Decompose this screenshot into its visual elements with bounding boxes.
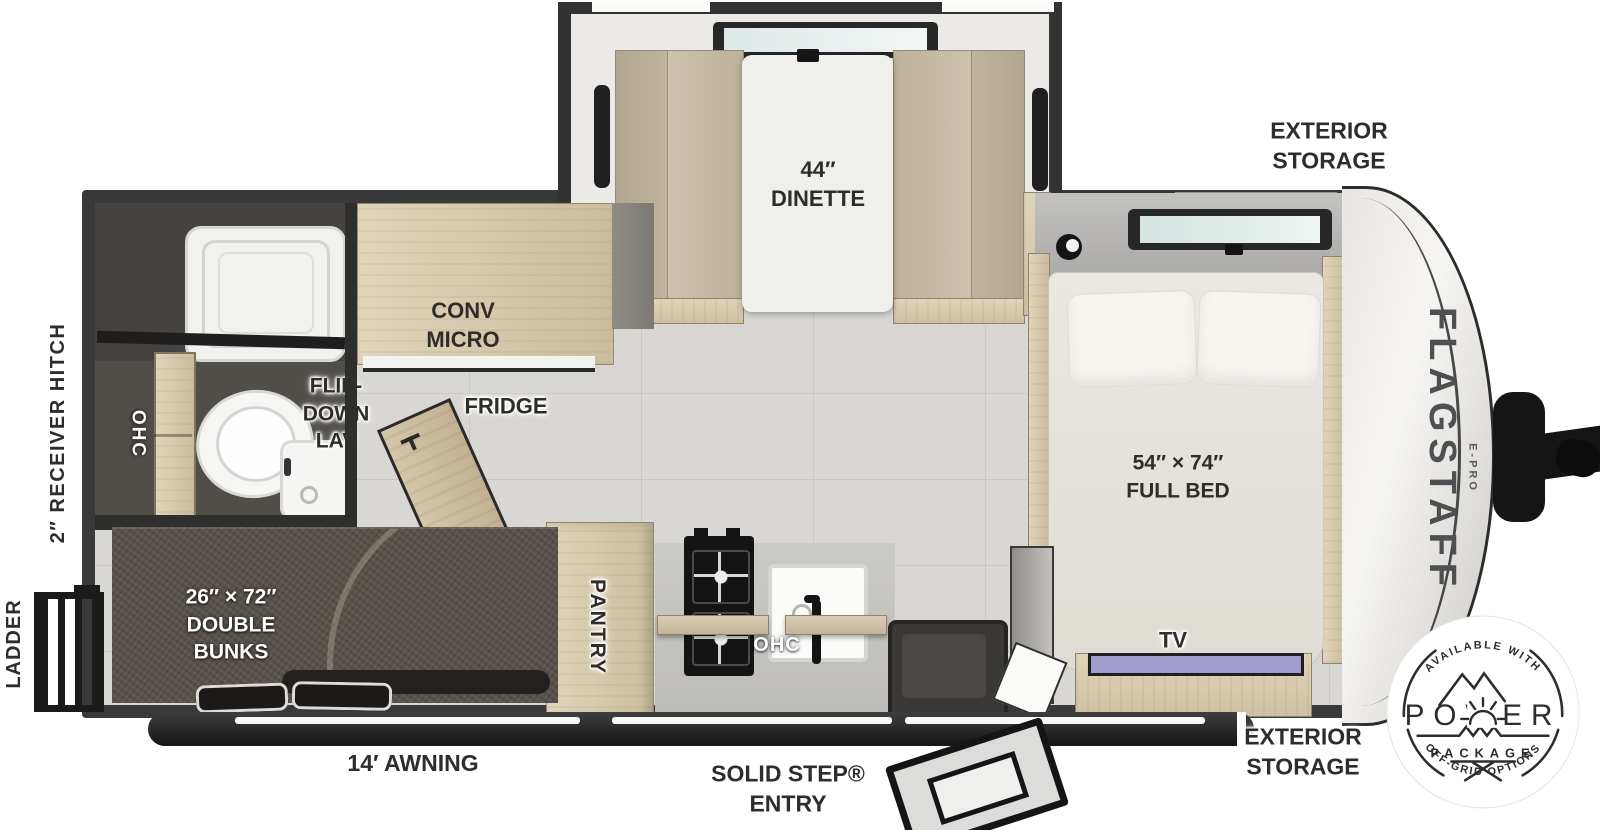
awning-highlight-1 xyxy=(235,717,580,724)
slide-wall-gap-right xyxy=(942,1,1054,12)
pantry-label: PANTRY xyxy=(583,579,611,675)
flip-text: FLIP- xyxy=(303,372,370,400)
bunk-double-text: DOUBLE xyxy=(186,611,277,639)
floor-mat-left xyxy=(196,682,289,713)
power-package-badge: AVAILABLE WITH POWER PACKAGE OFF-GRID OP… xyxy=(1384,613,1582,811)
floorplan-canvas: 44″ DINETTE OHC FLIP- DOWN LAV CONV MICR… xyxy=(0,0,1600,830)
sink-faucet-spout xyxy=(804,595,820,603)
dinette-bench-left-seat xyxy=(667,50,744,302)
down-text: DOWN xyxy=(303,400,370,428)
bed-label: 54″ × 74″ FULL BED xyxy=(1126,449,1229,504)
bath-partition-vertical xyxy=(345,203,357,530)
dinette-text: DINETTE xyxy=(771,184,865,213)
dinette-window-glass xyxy=(724,28,927,52)
floor-mat-right xyxy=(292,681,392,711)
bed-size-text: 54″ × 74″ xyxy=(1126,449,1229,477)
conv-micro-label: CONV MICRO xyxy=(426,296,499,354)
speaker-knob-inner xyxy=(1066,239,1079,252)
kitchen-ohc-label: OHC xyxy=(753,632,800,658)
ext-storage-top-2: STORAGE xyxy=(1270,146,1388,176)
bath-ohc-cabinet xyxy=(154,352,196,526)
dinette-size-text: 44″ xyxy=(771,155,865,184)
awning-highlight-3 xyxy=(905,717,1205,724)
fridge-counter-line xyxy=(363,368,595,372)
micro-text: MICRO xyxy=(426,325,499,354)
dinette-bench-right-back xyxy=(971,50,1025,302)
dinette-label: 44″ DINETTE xyxy=(771,155,865,213)
dinette-bench-right-seat xyxy=(893,50,973,302)
tv-screen xyxy=(1088,653,1304,676)
fridge-counter-edge xyxy=(363,356,595,368)
bunks-label: 26″ × 72″ DOUBLE BUNKS xyxy=(186,583,277,666)
shower-pan-contour-inner xyxy=(218,252,314,334)
slide-side-window-right xyxy=(1032,88,1048,191)
cooktop-knob-2 xyxy=(726,528,740,537)
bed-name-text: FULL BED xyxy=(1126,477,1229,505)
burner-front xyxy=(692,550,750,604)
exterior-storage-top-label: EXTERIOR STORAGE xyxy=(1270,116,1388,177)
awning-label: 14′ AWNING xyxy=(347,748,478,778)
entry-text: ENTRY xyxy=(711,789,865,819)
solid-step-text: SOLID STEP® xyxy=(711,759,865,789)
slide-wall-gap-left xyxy=(592,1,710,12)
receiver-hitch-label: 2″ RECEIVER HITCH xyxy=(45,323,71,544)
pillow-left xyxy=(1066,290,1197,388)
ladder-mount-arm xyxy=(74,585,100,594)
kitchen-ohc-bar-left xyxy=(657,615,769,635)
conv-micro-side-panel xyxy=(612,203,654,329)
bath-ohc-divider xyxy=(154,434,192,437)
lav-text: LAV xyxy=(303,428,370,456)
exterior-storage-bottom-label: EXTERIOR STORAGE xyxy=(1244,722,1362,783)
slide-side-window-left xyxy=(594,85,610,188)
brand-flagstaff: FLAGSTAFF xyxy=(1417,307,1467,593)
lav-faucet xyxy=(284,458,291,476)
tv-label: TV xyxy=(1159,625,1187,654)
skylight-latch xyxy=(1225,244,1243,255)
bunk-bunks-text: BUNKS xyxy=(186,639,277,667)
ext-storage-bot-1: EXTERIOR xyxy=(1244,722,1362,752)
awning-highlight-2 xyxy=(612,717,892,724)
fridge-label: FRIDGE xyxy=(464,391,547,420)
bath-ohc-label: OHC xyxy=(125,410,150,458)
ext-storage-top-1: EXTERIOR xyxy=(1270,116,1388,146)
bed-skylight-glass xyxy=(1140,216,1320,243)
table-window-latch xyxy=(797,49,819,62)
bunk-size-text: 26″ × 72″ xyxy=(186,583,277,611)
brand-epro: E-PRO xyxy=(1465,443,1480,493)
flip-down-lav-label: FLIP- DOWN LAV xyxy=(303,372,370,455)
ladder-label: LADDER xyxy=(1,599,27,688)
entry-stepwell-surface xyxy=(902,634,986,698)
dinette-bench-right-base xyxy=(893,298,1025,324)
conv-text: CONV xyxy=(426,296,499,325)
lav-sink-drain xyxy=(300,486,318,504)
entry-label: SOLID STEP® ENTRY xyxy=(711,759,865,820)
cooktop-knob-1 xyxy=(694,528,708,537)
ext-storage-bot-2: STORAGE xyxy=(1244,752,1362,782)
ladder-graphic xyxy=(34,592,104,712)
pillow-right xyxy=(1196,290,1321,388)
